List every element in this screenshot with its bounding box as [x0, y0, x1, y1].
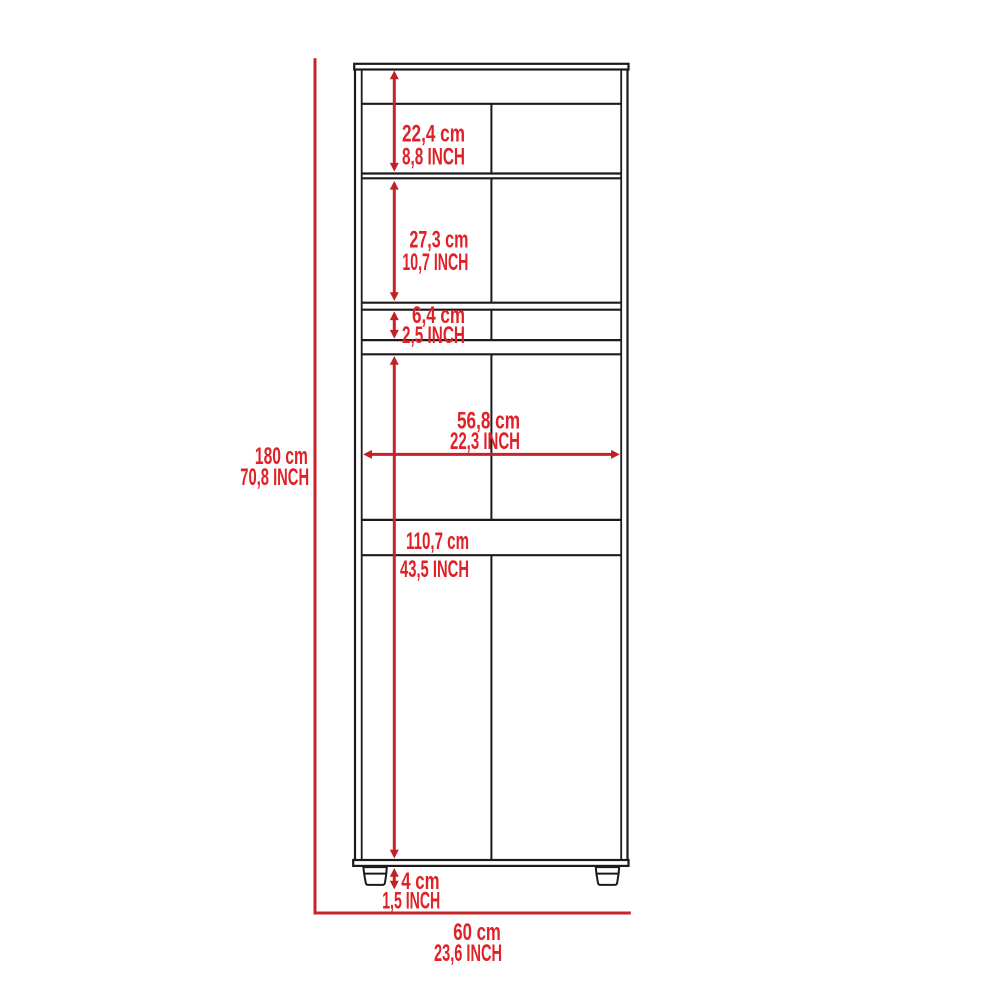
svg-text:70,8 INCH: 70,8 INCH: [240, 464, 309, 491]
svg-text:1,5 INCH: 1,5 INCH: [382, 887, 440, 914]
svg-text:2,5 INCH: 2,5 INCH: [402, 322, 465, 349]
svg-text:110,7 cm: 110,7 cm: [406, 528, 469, 555]
svg-text:10,7 INCH: 10,7 INCH: [402, 249, 468, 276]
svg-text:22,3 INCH: 22,3 INCH: [450, 428, 520, 455]
svg-text:43,5 INCH: 43,5 INCH: [400, 556, 469, 583]
svg-text:23,6 INCH: 23,6 INCH: [434, 940, 502, 967]
svg-text:8,8 INCH: 8,8 INCH: [402, 144, 465, 171]
